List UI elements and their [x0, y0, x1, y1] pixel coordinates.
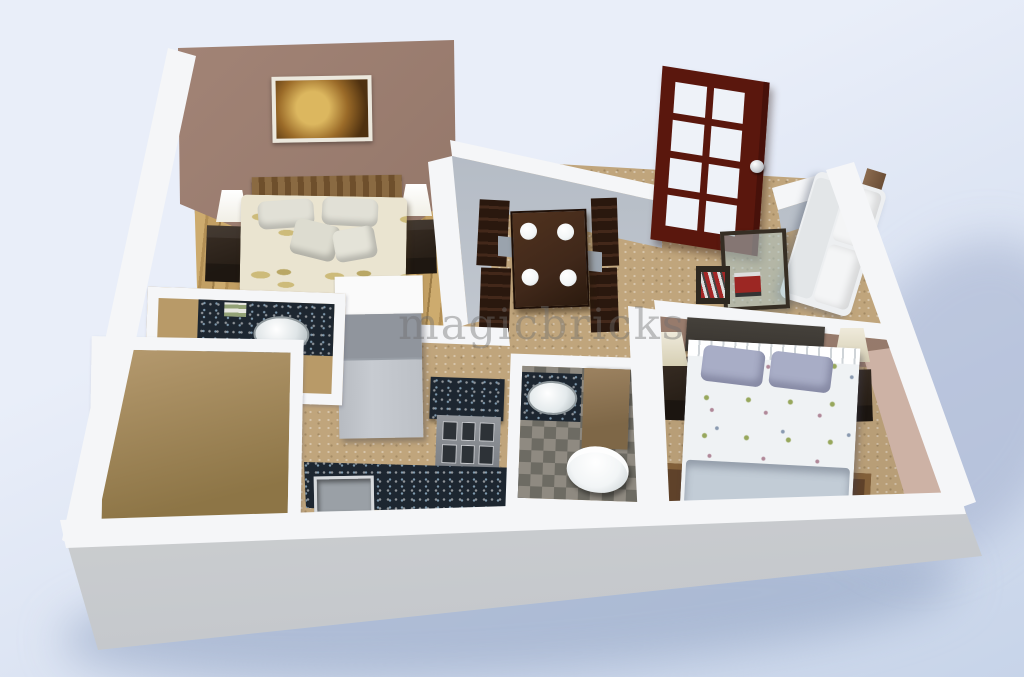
place-setting — [521, 268, 539, 286]
place-setting — [559, 269, 577, 287]
glass-coffee-table — [720, 228, 790, 311]
door-pane — [711, 88, 744, 124]
magazines — [701, 272, 725, 298]
burner — [479, 445, 494, 465]
door-pane — [671, 120, 704, 156]
place-setting — [557, 223, 575, 241]
watermark-text: magicbricks — [398, 300, 686, 350]
door-pane — [706, 163, 739, 199]
door-knob — [750, 160, 764, 173]
burner — [479, 422, 494, 442]
wall-art-frame — [271, 75, 372, 143]
magazine-rack — [696, 266, 730, 304]
burner — [460, 445, 475, 465]
bed1-pillow — [321, 197, 378, 228]
door-pane — [665, 195, 698, 231]
burner — [441, 444, 456, 463]
bed2-pillow — [700, 344, 766, 387]
towel-stack — [224, 302, 246, 317]
kitchen-sink — [314, 475, 375, 514]
hob-unit — [435, 415, 501, 471]
burner — [442, 421, 457, 440]
burner — [461, 422, 476, 442]
door-pane — [709, 126, 742, 162]
floor-plan-render: magicbricks — [0, 0, 1024, 677]
bed2-pillow — [768, 350, 834, 393]
book-stack — [734, 276, 761, 293]
half-wall-marble — [582, 368, 631, 450]
place-setting — [520, 222, 538, 240]
door-pane — [668, 157, 701, 193]
door-pane — [673, 82, 706, 118]
dining-table — [510, 209, 589, 310]
